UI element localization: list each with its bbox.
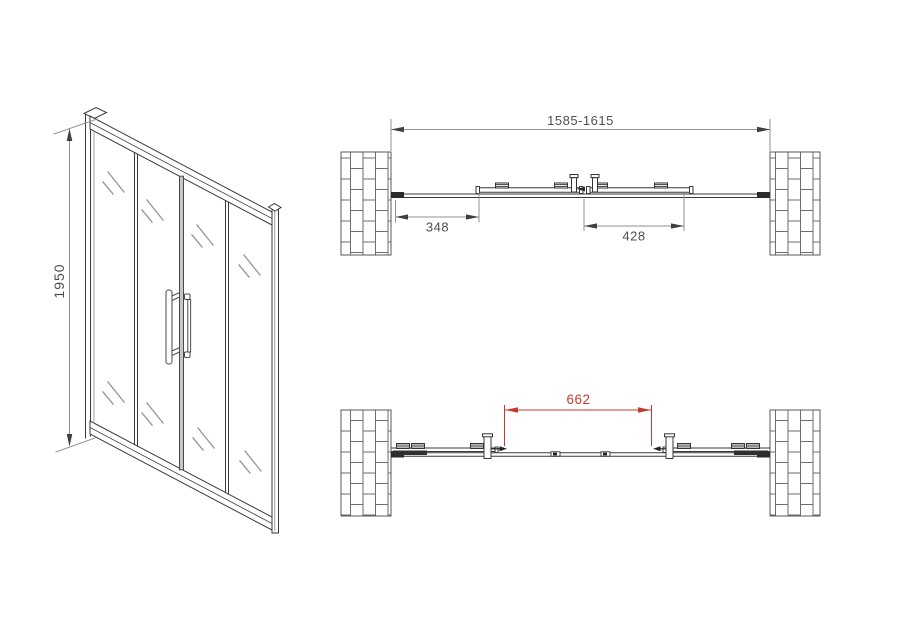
roller <box>397 444 410 449</box>
plan-handle-right <box>591 175 599 193</box>
plan-view-open: 662 <box>341 392 820 516</box>
wall-right <box>770 410 820 516</box>
height-dimension-label: 1950 <box>51 263 67 298</box>
left-panel-label: 348 <box>426 220 449 235</box>
roller <box>655 183 668 188</box>
roller <box>412 444 425 449</box>
door-handle-right <box>185 294 191 358</box>
shower-door-drawing: 1950 1585-1615 <box>0 0 900 636</box>
sliding-panel-label: 428 <box>622 229 645 244</box>
wall-left <box>341 410 391 516</box>
roller <box>732 444 745 449</box>
front-view: 1950 <box>51 108 281 534</box>
wall-left <box>341 152 391 255</box>
left-panel-dimension: 348 <box>396 193 480 235</box>
overall-width-label: 1585-1615 <box>547 113 614 128</box>
wall-right <box>770 152 820 255</box>
plan-handle-left <box>570 175 578 193</box>
opening-label: 662 <box>566 392 590 407</box>
wall-bracket-right <box>757 192 770 198</box>
slide-arrow-right <box>500 446 508 451</box>
center-meeting-stile <box>180 176 184 470</box>
door-handle-left <box>166 290 180 364</box>
open-handle <box>666 437 673 459</box>
overall-width-dimension: 1585-1615 <box>391 113 770 151</box>
roller <box>678 444 691 449</box>
slide-arrow-left <box>653 446 661 451</box>
wall-bracket-left <box>391 192 404 198</box>
plan-view-closed: 1585-1615 <box>341 113 820 255</box>
roller <box>471 444 484 449</box>
open-handle <box>484 437 491 459</box>
right-post <box>269 204 282 534</box>
opening-dimension: 662 <box>505 392 652 446</box>
technical-drawing-canvas: 1950 1585-1615 <box>0 0 900 636</box>
panel-clamp <box>734 451 768 456</box>
roller <box>496 183 509 188</box>
panel-clamp <box>393 451 427 456</box>
panel-mullions <box>135 153 229 495</box>
left-wall-profile <box>84 108 107 439</box>
track-open <box>391 453 770 456</box>
roller <box>555 183 568 188</box>
roller <box>747 444 760 449</box>
sliding-panel-dimension: 428 <box>584 193 684 244</box>
